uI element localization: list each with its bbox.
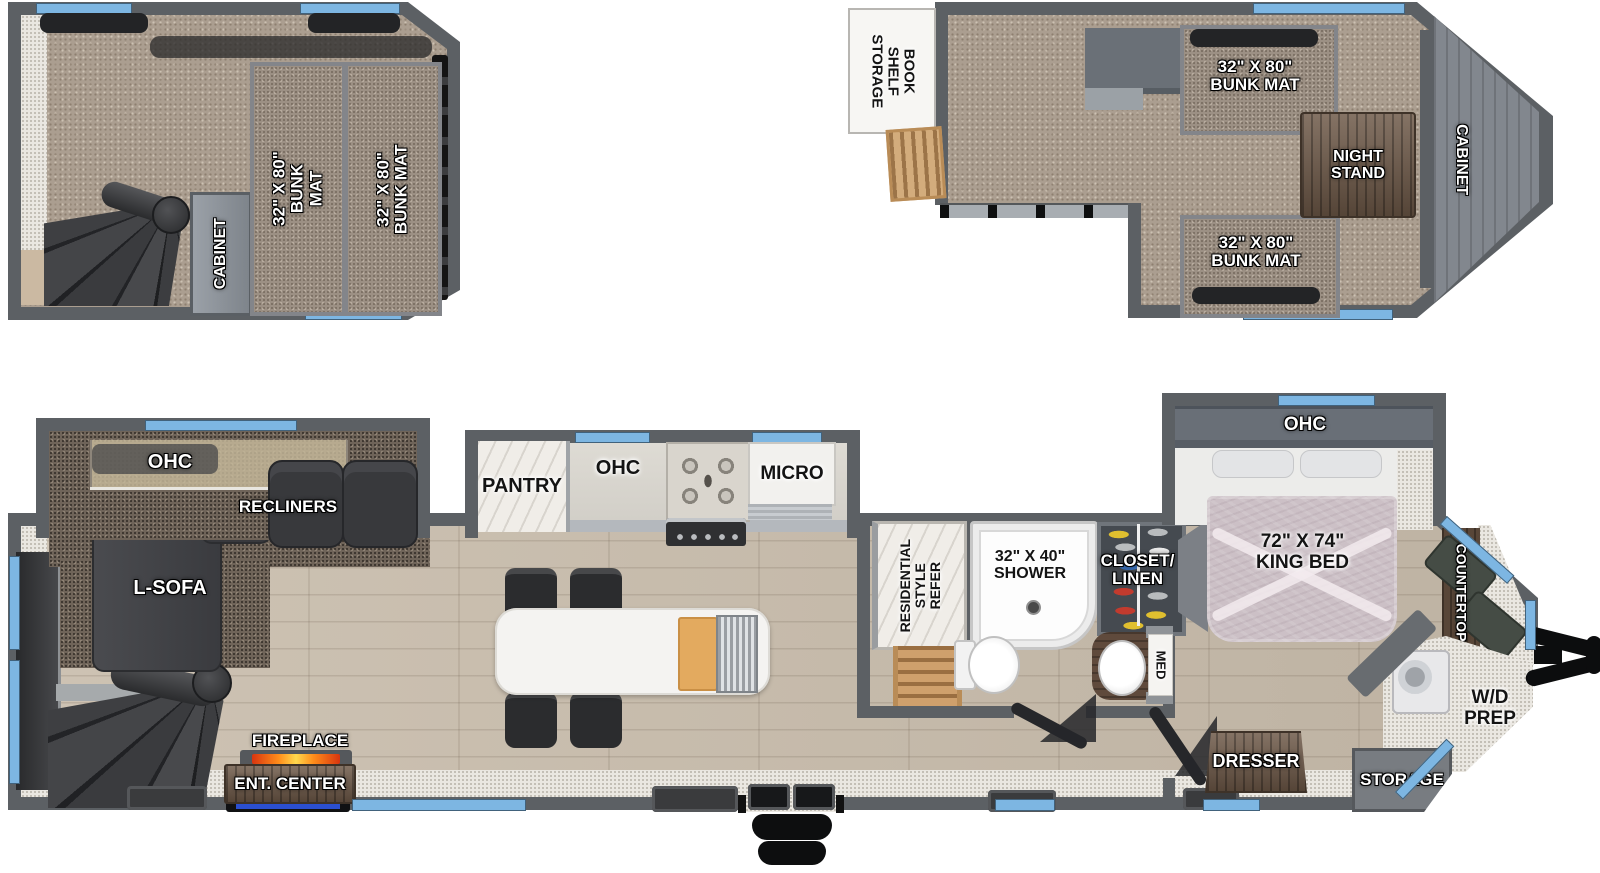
washer-door-icon — [1398, 660, 1432, 694]
pillow-icon — [1212, 450, 1294, 478]
island-chair — [505, 692, 557, 748]
oven-front-icon — [666, 518, 746, 546]
front-loft-bunk-top-label: 32" X 80" BUNK MAT — [1180, 58, 1330, 95]
stove-cooktop-icon — [666, 442, 750, 522]
entry-door-jamb — [738, 795, 746, 813]
rear-loft-stair-post — [152, 196, 190, 234]
bedroom-ohc-label: OHC — [1265, 415, 1345, 436]
cutting-board-icon — [678, 617, 718, 691]
living-slide-window — [145, 420, 297, 431]
bedroom-wall-stub — [1163, 778, 1175, 797]
rear-wall-window — [9, 660, 20, 784]
king-bed-label: 72" X 74" KING BED — [1230, 532, 1375, 573]
oven-knobs-icon — [676, 534, 738, 540]
recliners-label: RECLINERS — [238, 498, 338, 516]
entry-mat — [748, 784, 790, 810]
bottom-wall-window — [1203, 799, 1260, 811]
floorplan-canvas: CABINET 32" X 80" BUNK MAT 32" X 80" BUN… — [0, 0, 1600, 873]
fireplace-flame-icon — [252, 754, 340, 764]
front-loft-cap-wall — [1420, 30, 1434, 288]
floor-mat — [127, 786, 207, 810]
rear-wall-window — [9, 556, 20, 650]
island-sink-icon — [716, 615, 758, 693]
countertop-label: COUNTERTOP — [1453, 544, 1468, 642]
front-loft-night-stand: NIGHT STAND — [1300, 112, 1416, 218]
rear-loft-bunk-right: 32" X 80" BUNK MAT — [344, 62, 442, 316]
med-label: MED — [1153, 651, 1167, 680]
hitch-coupler-icon — [1586, 636, 1600, 674]
ent-center-label: ENT. CENTER — [234, 775, 345, 793]
loft-steps-icon — [893, 646, 962, 706]
bedroom-slide-window — [1278, 395, 1375, 406]
rear-loft-cabinet-label: CABINET — [212, 218, 229, 289]
rear-loft-cabinet: CABINET — [190, 192, 252, 316]
rear-loft-headboard — [40, 13, 148, 33]
nose-window — [1525, 600, 1536, 650]
micro-label: MICRO — [760, 464, 823, 485]
l-sofa-label: L-SOFA — [120, 578, 220, 600]
island-chair — [570, 692, 622, 748]
front-loft-shelf-step — [1085, 88, 1143, 110]
front-loft-edge-rail — [940, 203, 1128, 218]
front-loft-bunk-bottom-footboard — [1192, 287, 1320, 304]
front-loft-night-stand-label: NIGHT STAND — [1331, 148, 1385, 183]
refer-label: RESIDENTIAL STYLE REFER — [898, 539, 943, 632]
fireplace-label: FIREPLACE — [245, 732, 355, 750]
rear-loft-bunk-left-label: 32" X 80" BUNK MAT — [270, 145, 325, 233]
floor-mat — [652, 786, 738, 812]
kitchen-slide-window — [575, 432, 650, 443]
front-loft-bookshelf-label: BOOK SHELF STORAGE — [868, 29, 917, 113]
living-ohc-label: OHC — [130, 452, 210, 474]
bottom-wall-window — [995, 799, 1055, 811]
rear-loft-headboard — [308, 13, 400, 33]
rear-loft-bunk-right-label: 32" X 80" BUNK MAT — [375, 144, 412, 233]
bedroom-slide-finish — [1397, 450, 1433, 530]
dresser: DRESSER — [1205, 731, 1307, 793]
front-loft-bookshelf-storage: BOOK SHELF STORAGE — [848, 8, 936, 134]
hitch-box-icon — [1534, 646, 1562, 664]
entry-steps-icon — [752, 814, 832, 840]
shower-label: 32" X 40" SHOWER — [975, 548, 1085, 583]
front-loft-bunk-bottom-label: 32" X 80" BUNK MAT — [1180, 234, 1332, 271]
bath-wall — [857, 706, 1014, 718]
front-loft-window-top — [1253, 3, 1405, 14]
front-loft-cabinet-label: CABINET — [1453, 124, 1470, 195]
front-loft-stairs-icon — [886, 126, 947, 202]
med-cabinet: MED — [1148, 634, 1173, 696]
kitchen-ohc-label: OHC — [578, 458, 658, 480]
rear-loft-shadow-strip — [150, 36, 432, 58]
dresser-label: DRESSER — [1212, 752, 1299, 771]
closet-label: CLOSET/ LINEN — [1070, 552, 1205, 589]
bottom-wall-window — [352, 799, 526, 811]
entry-door-jamb — [836, 795, 844, 813]
entry-steps-icon — [758, 841, 826, 865]
rear-loft-bunk-left: 32" X 80" BUNK MAT — [250, 62, 346, 316]
front-loft-bunk-top-headboard — [1190, 29, 1318, 47]
recliner-icon — [342, 460, 418, 548]
vanity-sink-icon — [1098, 640, 1146, 696]
residential-refer: RESIDENTIAL STYLE REFER — [872, 521, 967, 650]
wd-prep-label: W/D PREP — [1448, 688, 1532, 729]
pantry-label: PANTRY — [482, 476, 562, 498]
toilet-icon — [968, 636, 1020, 694]
pantry: PANTRY — [478, 441, 570, 532]
ent-center: ENT. CENTER — [224, 764, 356, 804]
pillow-icon — [1300, 450, 1382, 478]
bath-wall — [857, 521, 870, 718]
front-loft-cabinet-label-wrap: CABINET — [1446, 100, 1478, 220]
microwave: MICRO — [748, 442, 836, 506]
shower-drain-icon — [1026, 600, 1041, 615]
entry-mat — [793, 784, 835, 810]
microwave-vent — [748, 504, 832, 520]
